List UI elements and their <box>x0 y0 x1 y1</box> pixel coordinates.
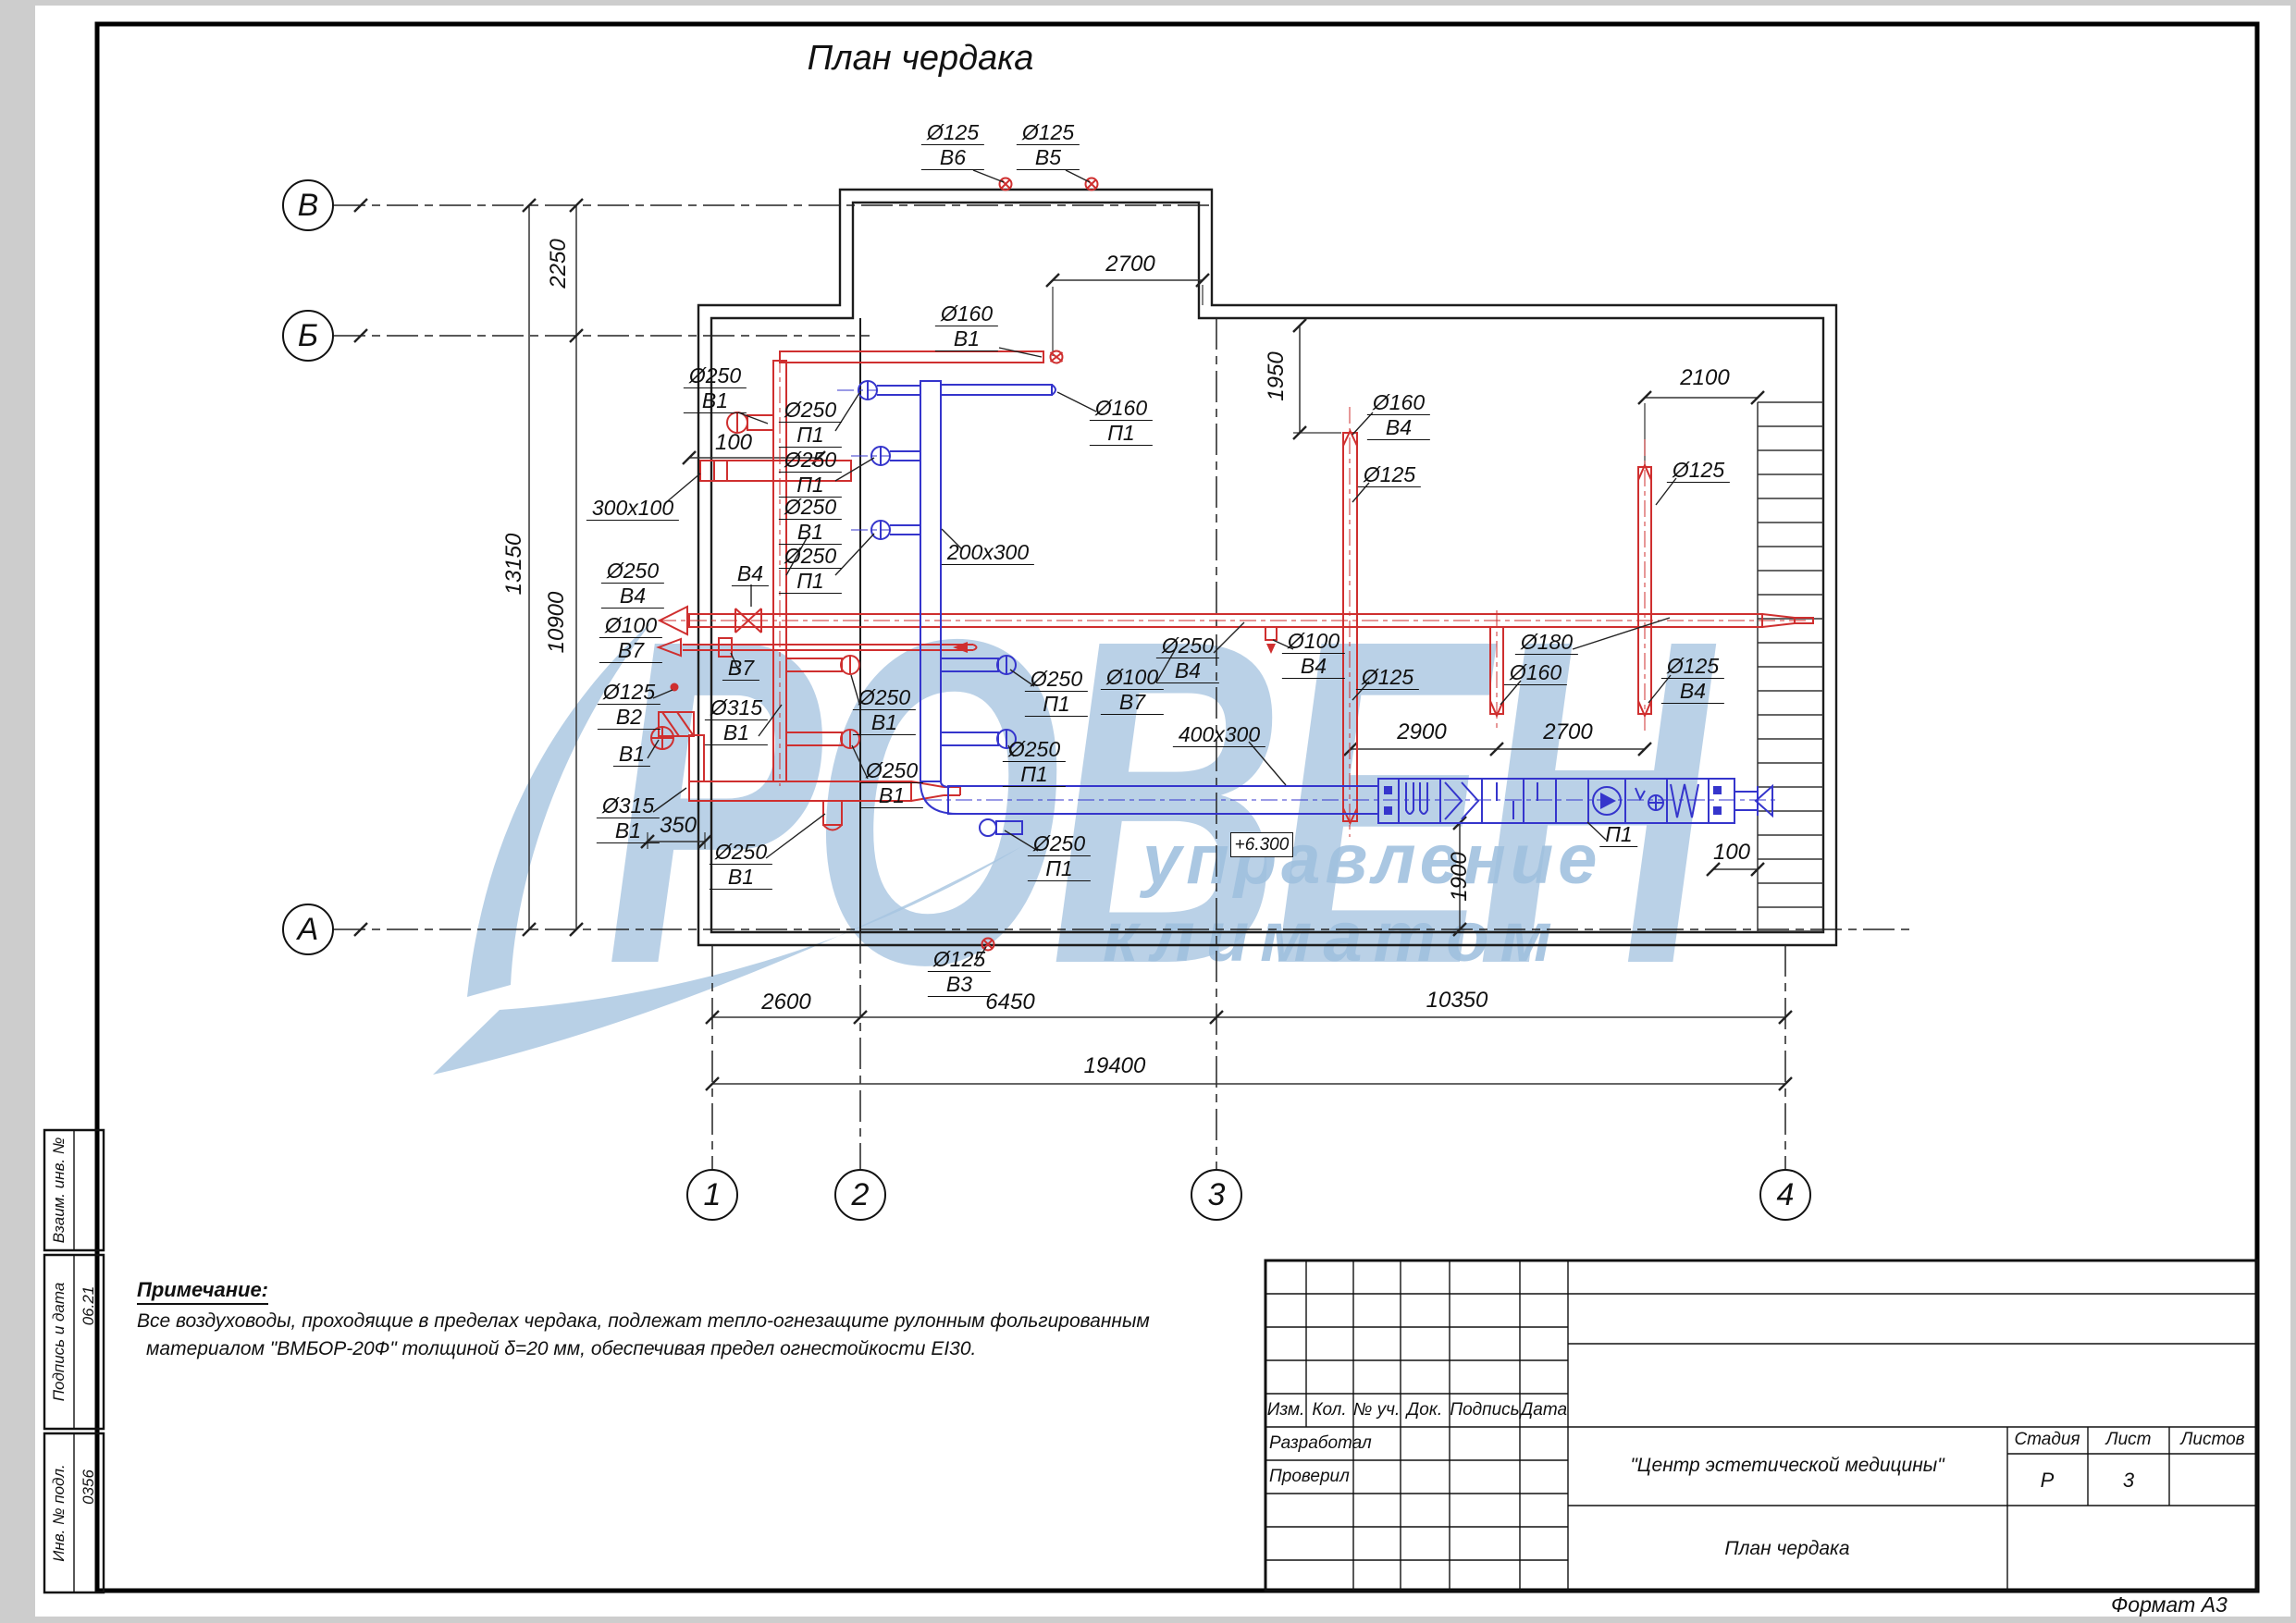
duct-label-line: Ø250 <box>1156 633 1219 658</box>
duct-label-line: Ø125 <box>1667 458 1730 483</box>
duct-label-Ø125-В4: Ø125В4 <box>1661 654 1724 704</box>
duct-label-line: В4 <box>732 561 769 586</box>
axis-marker-Б: Б <box>282 310 334 362</box>
duct-label-line: Ø125 <box>598 680 660 705</box>
duct-label-line: П1 <box>1599 822 1637 847</box>
duct-label-line: В2 <box>598 705 660 730</box>
tb-stage-label: Стадия <box>2014 1430 2080 1450</box>
duct-label-line: В7 <box>599 638 662 663</box>
duct-label-line: Ø125 <box>921 120 984 145</box>
duct-label-Ø125-В6: Ø125В6 <box>921 120 984 170</box>
duct-label-line: П1 <box>1028 856 1091 881</box>
duct-label-В1: В1 <box>613 742 650 767</box>
duct-label-line: Ø315 <box>597 793 660 818</box>
dimension-1950: 1950 <box>1264 351 1290 400</box>
duct-label-line: Ø100 <box>1101 665 1164 690</box>
duct-label-line: В1 <box>613 742 650 767</box>
stamp-group2-label: Подпись и дата <box>50 1283 68 1402</box>
duct-label-line: 400x300 <box>1173 722 1265 747</box>
duct-label-line: Ø250 <box>853 685 916 710</box>
duct-label-line: Ø100 <box>599 613 662 638</box>
duct-label-line: В5 <box>1017 145 1080 170</box>
duct-label-line: Ø250 <box>860 758 923 783</box>
duct-label-line: Ø250 <box>601 559 664 584</box>
duct-label-Ø125: Ø125 <box>1358 462 1421 487</box>
duct-label-Ø125-В3: Ø125В3 <box>928 947 991 997</box>
duct-label-line: Ø250 <box>1028 831 1091 856</box>
duct-label-Ø250-В1: Ø250В1 <box>860 758 923 808</box>
duct-label-line: П1 <box>1025 692 1088 717</box>
tb-col-uch: № уч. <box>1353 1400 1400 1420</box>
tb-col-podpis: Подпись <box>1450 1400 1519 1420</box>
duct-label-line: Ø250 <box>1025 667 1088 692</box>
duct-label-line: В3 <box>928 972 991 997</box>
duct-label-line: В4 <box>1367 415 1430 440</box>
duct-label-Ø250-П1: Ø250П1 <box>779 544 842 594</box>
duct-label-line: В1 <box>779 520 842 545</box>
duct-label-Ø100-В4: Ø100В4 <box>1282 629 1345 679</box>
duct-label-line: В1 <box>710 865 772 890</box>
duct-label-line: Ø125 <box>1356 665 1419 690</box>
duct-label-line: Ø315 <box>705 695 768 720</box>
duct-label-Ø125: Ø125 <box>1356 665 1419 690</box>
duct-label-line: 200x300 <box>942 540 1034 565</box>
duct-label-line: Ø160 <box>1090 396 1153 421</box>
dimension-2100: 2100 <box>1680 365 1729 391</box>
dimension-6450: 6450 <box>985 990 1034 1015</box>
duct-label-line: В1 <box>684 388 747 413</box>
tb-sheet-value: 3 <box>2123 1469 2134 1493</box>
duct-label-Ø180: Ø180 <box>1515 630 1578 655</box>
duct-label-Ø100-В7: Ø100В7 <box>599 613 662 663</box>
duct-label-line: В1 <box>705 720 768 745</box>
duct-label-line: Ø100 <box>1282 629 1345 654</box>
tb-sheet-label: Лист <box>2106 1430 2152 1450</box>
duct-label-В4: В4 <box>732 561 769 586</box>
duct-label-Ø315-В1: Ø315В1 <box>597 793 660 843</box>
duct-label-Ø160-В1: Ø160В1 <box>935 301 998 351</box>
duct-label-line: П1 <box>779 473 842 498</box>
duct-label-Ø100-В7: Ø100В7 <box>1101 665 1164 715</box>
note-line-1: Все воздуховоды, проходящие в пределах ч… <box>137 1310 1150 1333</box>
duct-label-line: В4 <box>601 584 664 609</box>
duct-label-Ø250-В1: Ø250В1 <box>779 495 842 545</box>
duct-label-Ø250-В1: Ø250В1 <box>853 685 916 735</box>
axis-marker-В: В <box>282 179 334 231</box>
note-heading: Примечание: <box>137 1278 268 1305</box>
duct-label-line: В7 <box>722 656 759 681</box>
dimension-100: 100 <box>1713 840 1750 866</box>
stamp-group3-value: 0356 <box>80 1469 98 1505</box>
duct-label-line: Ø250 <box>710 840 772 865</box>
duct-label-Ø250-В4: Ø250В4 <box>601 559 664 609</box>
axis-marker-3: 3 <box>1191 1169 1242 1221</box>
duct-label-line: В1 <box>860 783 923 808</box>
duct-label-line: Ø125 <box>1017 120 1080 145</box>
duct-label-line: П1 <box>779 569 842 594</box>
duct-label-line: П1 <box>1003 762 1066 787</box>
axis-marker-4: 4 <box>1759 1169 1811 1221</box>
duct-label-Ø250-П1: Ø250П1 <box>1028 831 1091 881</box>
duct-label-400x300: 400x300 <box>1173 722 1265 747</box>
duct-label-line: Ø250 <box>779 495 842 520</box>
duct-label-line: Ø250 <box>779 544 842 569</box>
note: Примечание: Все воздуховоды, проходящие … <box>137 1278 1150 1360</box>
dimension-2600: 2600 <box>761 990 810 1015</box>
duct-label-line: П1 <box>1090 421 1153 446</box>
tb-col-izm: Изм. <box>1267 1400 1305 1420</box>
duct-label-300x100: 300x100 <box>586 496 679 521</box>
duct-label-line: В7 <box>1101 690 1164 715</box>
page-title: План чердака <box>808 39 1034 79</box>
duct-label-line: Ø125 <box>1358 462 1421 487</box>
note-line-2: материалом "ВМБОР-20Ф" толщиной δ=20 мм,… <box>137 1338 1150 1360</box>
duct-label-Ø250-П1: Ø250П1 <box>779 398 842 448</box>
duct-label-line: В4 <box>1282 654 1345 679</box>
duct-label-line: В1 <box>597 818 660 843</box>
tb-col-dok: Док. <box>1407 1400 1442 1420</box>
tb-object-name: "Центр эстетической медицины" <box>1630 1455 1944 1477</box>
stamp-group2-value: 06.21 <box>80 1286 98 1326</box>
axis-marker-2: 2 <box>834 1169 886 1221</box>
duct-label-line: Ø125 <box>928 947 991 972</box>
duct-label-line: Ø160 <box>1504 660 1567 685</box>
duct-label-line: П1 <box>779 423 842 448</box>
duct-label-Ø160-В4: Ø160В4 <box>1367 390 1430 440</box>
duct-label-Ø160-П1: Ø160П1 <box>1090 396 1153 446</box>
duct-label-200x300: 200x300 <box>942 540 1034 565</box>
duct-label-line: Ø160 <box>1367 390 1430 415</box>
duct-label-line: В1 <box>935 326 998 351</box>
duct-label-line: Ø250 <box>779 448 842 473</box>
duct-label-line: В4 <box>1661 679 1724 704</box>
duct-label-Ø125-В2: Ø125В2 <box>598 680 660 730</box>
tb-row-razrabotal: Разработал <box>1269 1433 1372 1454</box>
duct-label-П1: П1 <box>1599 822 1637 847</box>
duct-label-В7: В7 <box>722 656 759 681</box>
duct-label-Ø250-П1: Ø250П1 <box>1003 737 1066 787</box>
duct-label-line: Ø125 <box>1661 654 1724 679</box>
axis-marker-1: 1 <box>686 1169 738 1221</box>
dimension-2700: 2700 <box>1543 719 1592 745</box>
tb-doc-title: План чердака <box>1724 1538 1849 1560</box>
axis-marker-А: А <box>282 904 334 955</box>
dimension-1900: 1900 <box>1447 852 1473 901</box>
dimension-19400: 19400 <box>1084 1053 1146 1079</box>
duct-label-line: В6 <box>921 145 984 170</box>
duct-label-line: Ø180 <box>1515 630 1578 655</box>
tb-col-kol: Кол. <box>1312 1400 1346 1420</box>
duct-label-line: Ø250 <box>779 398 842 423</box>
tb-col-data: Дата <box>1521 1400 1567 1420</box>
tb-stage-value: Р <box>2041 1469 2055 1493</box>
duct-label-Ø250-В1: Ø250В1 <box>710 840 772 890</box>
dimension-10900: 10900 <box>544 592 570 654</box>
duct-label-Ø125: Ø125 <box>1667 458 1730 483</box>
format-label: Формат А3 <box>2111 1592 2228 1617</box>
tb-row-proveril: Проверил <box>1269 1467 1350 1487</box>
duct-label-Ø250-П1: Ø250П1 <box>779 448 842 498</box>
duct-label-line: Ø160 <box>935 301 998 326</box>
dimension-350: 350 <box>660 813 697 839</box>
duct-label-line: В4 <box>1156 658 1219 683</box>
labels-layer: ВБА1234225013150109002700195021001003502… <box>0 0 2296 1623</box>
dimension-10350: 10350 <box>1426 988 1488 1014</box>
elevation-mark: +6.300 <box>1230 832 1293 857</box>
duct-label-Ø125-В5: Ø125В5 <box>1017 120 1080 170</box>
duct-label-Ø315-В1: Ø315В1 <box>705 695 768 745</box>
duct-label-Ø160: Ø160 <box>1504 660 1567 685</box>
duct-label-line: 300x100 <box>586 496 679 521</box>
drawing-sheet: РОВЕН управление климатом <box>0 0 2296 1623</box>
dimension-13150: 13150 <box>501 534 527 596</box>
stamp-group3-label: Инв. № подл. <box>50 1464 68 1562</box>
stamp-group1-label: Взаим. инв. № <box>50 1137 68 1244</box>
dimension-2250: 2250 <box>546 239 572 288</box>
duct-label-line: Ø250 <box>684 363 747 388</box>
dimension-2700: 2700 <box>1105 252 1154 277</box>
duct-label-line: В1 <box>853 710 916 735</box>
dimension-2900: 2900 <box>1397 719 1446 745</box>
duct-label-line: Ø250 <box>1003 737 1066 762</box>
duct-label-Ø250-В1: Ø250В1 <box>684 363 747 413</box>
tb-sheets-label: Листов <box>2180 1430 2244 1450</box>
dimension-100: 100 <box>715 430 752 456</box>
duct-label-Ø250-П1: Ø250П1 <box>1025 667 1088 717</box>
duct-label-Ø250-В4: Ø250В4 <box>1156 633 1219 683</box>
